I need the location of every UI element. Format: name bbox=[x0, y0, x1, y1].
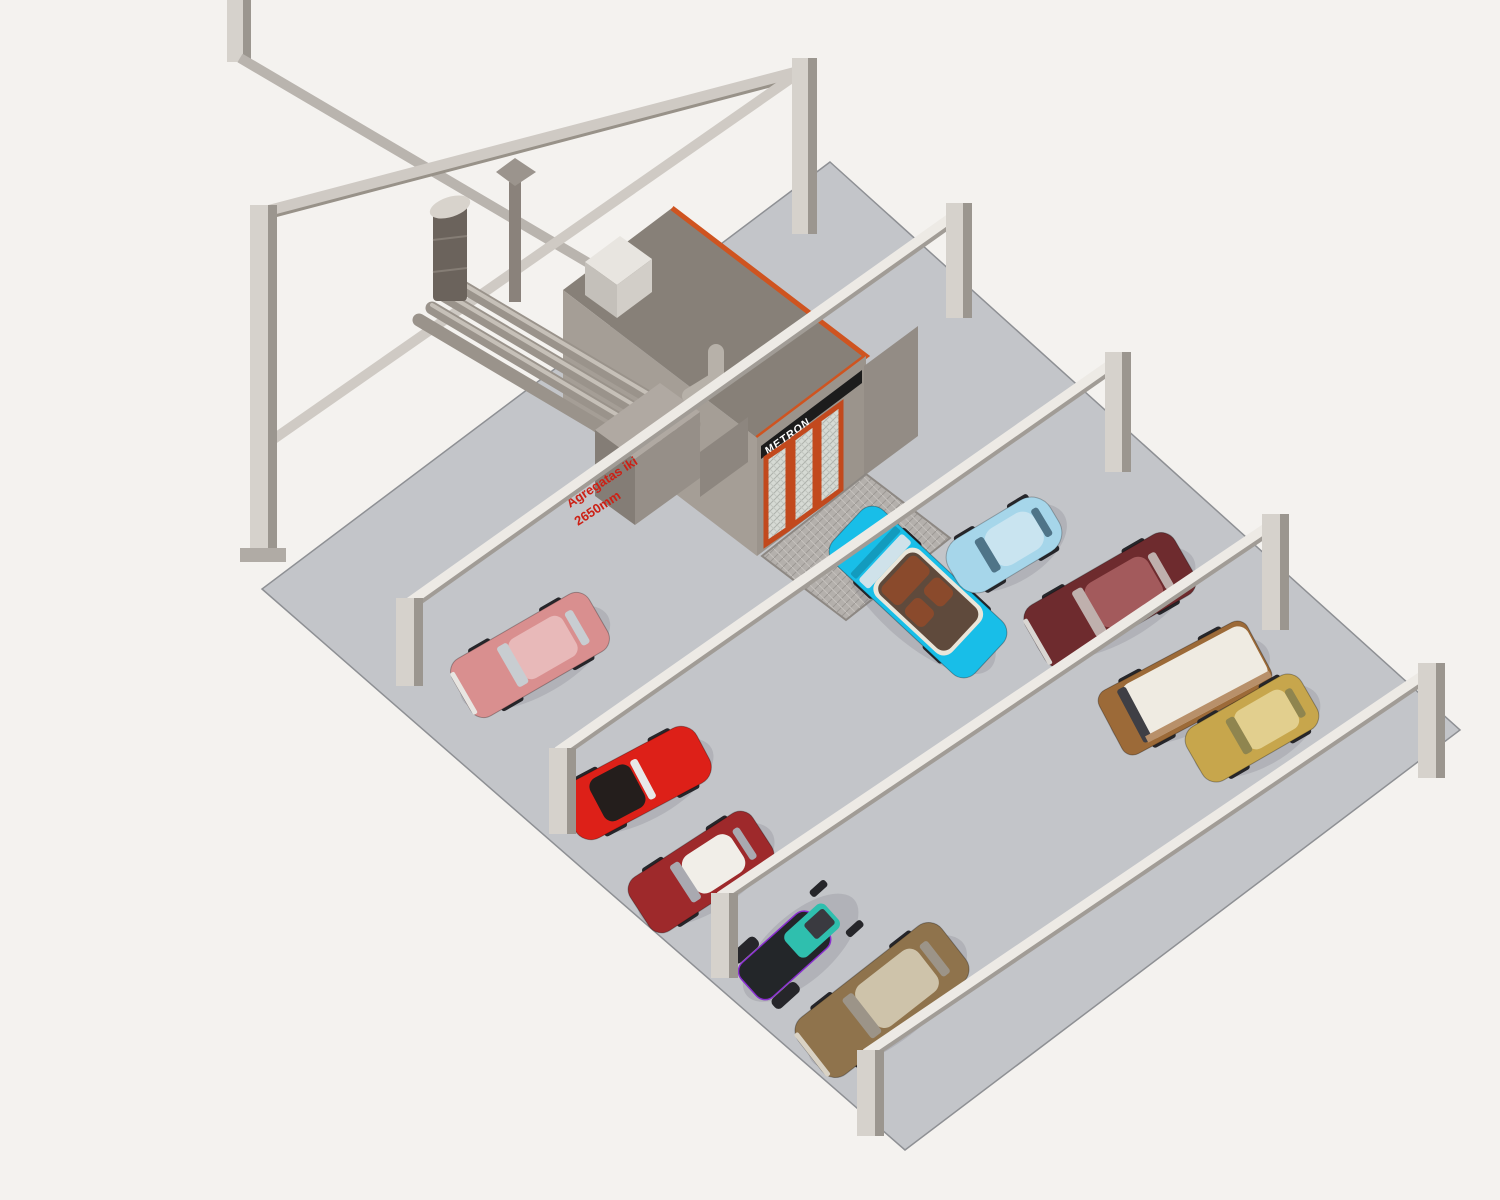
large-chimney bbox=[427, 191, 473, 301]
rail-post-ne-side bbox=[963, 203, 972, 318]
rail-post-sw-side bbox=[729, 893, 738, 978]
rail-post-sw-side bbox=[414, 598, 423, 686]
booth-door-1 bbox=[766, 443, 788, 544]
north-post-face bbox=[792, 58, 808, 234]
scene-canvas: METRON bbox=[0, 0, 1500, 1200]
rail-post-ne-face bbox=[946, 203, 963, 318]
corner-post-side bbox=[243, 0, 251, 62]
stack-pipe bbox=[509, 182, 521, 302]
chimney-body bbox=[433, 205, 467, 301]
rail-post-sw-side bbox=[875, 1050, 884, 1136]
west-post-face bbox=[250, 205, 268, 558]
corner-post-face bbox=[227, 0, 243, 62]
rail-post-sw-face bbox=[857, 1050, 875, 1136]
rail-post-ne-side bbox=[1436, 663, 1445, 778]
west-post-side bbox=[268, 205, 277, 558]
west-post-base bbox=[240, 548, 286, 562]
garage-3d-render: METRON bbox=[0, 0, 1500, 1200]
rail-post-sw-side bbox=[567, 748, 576, 834]
rail-post-ne-side bbox=[1122, 352, 1131, 472]
rail-post-ne-face bbox=[1262, 514, 1280, 630]
rail-post-ne-face bbox=[1418, 663, 1436, 778]
rail-post-ne-face bbox=[1105, 352, 1122, 472]
booth-door-2 bbox=[793, 423, 815, 525]
rail-post-sw-face bbox=[396, 598, 414, 686]
north-post-side bbox=[808, 58, 817, 234]
rail-post-ne-side bbox=[1280, 514, 1289, 630]
rail-post-sw-face bbox=[549, 748, 567, 834]
rail-post-sw-face bbox=[711, 893, 729, 978]
booth-door-3 bbox=[819, 404, 841, 506]
